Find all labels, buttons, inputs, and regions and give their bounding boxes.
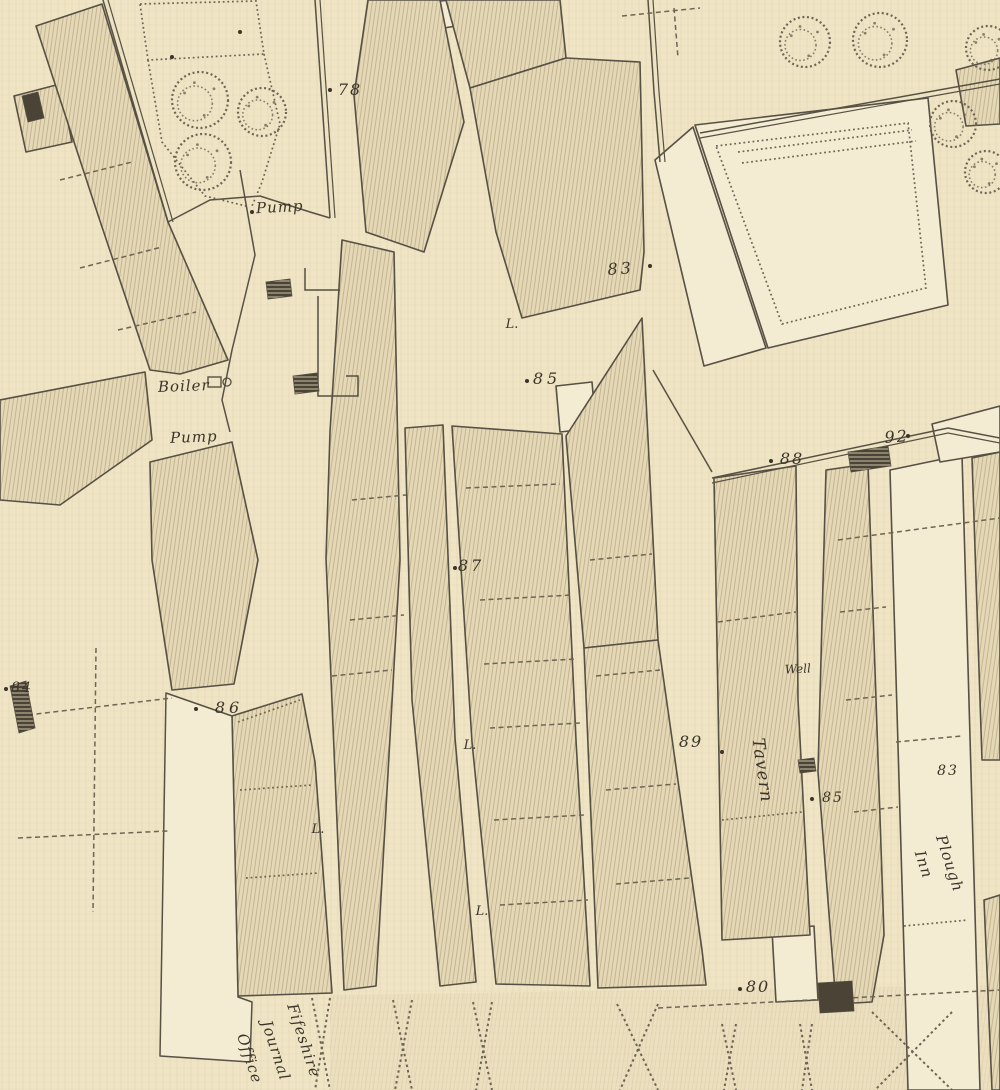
survey-dot [810, 797, 814, 801]
map-label-well: Well [784, 661, 811, 676]
map-label-pump-top: Pump [255, 197, 304, 218]
map-label-boiler: Boiler [157, 376, 210, 396]
survey-dot [453, 566, 457, 570]
survey-dot [170, 55, 174, 59]
structure-dark-s6 [818, 981, 854, 1013]
map-label-lamp-3: L. [463, 738, 477, 753]
survey-dot [648, 264, 652, 268]
map-label-lamp-1: L. [505, 317, 519, 332]
survey-dot [738, 987, 742, 991]
structure-dark-s7 [798, 758, 816, 773]
map-label-lamp-4: L. [475, 904, 489, 919]
map-canvas[interactable]: Pump78BoilerPump83L.859288878684L.L.L.89… [0, 0, 1000, 1090]
structure-dark-s3 [266, 279, 292, 299]
historic-map-view: Pump78BoilerPump83L.859288878684L.L.L.89… [0, 0, 1000, 1090]
map-label-num-88: 88 [780, 449, 804, 468]
survey-dot [769, 459, 773, 463]
survey-dot [525, 379, 529, 383]
ground-tint [330, 985, 1000, 1090]
survey-dot [4, 687, 8, 691]
structure-dark-s4 [293, 373, 319, 394]
map-label-lamp-2: L. [311, 822, 325, 837]
map-label-num-85-a: 85 [533, 369, 561, 388]
survey-dot [250, 210, 254, 214]
map-label-num-85-b: 85 [822, 790, 844, 806]
map-label-num-89: 89 [679, 732, 703, 751]
survey-dot [194, 707, 198, 711]
survey-dot [238, 30, 242, 34]
map-label-num-83-a: 83 [607, 258, 635, 279]
map-label-num-86: 86 [215, 698, 243, 717]
survey-dot [720, 750, 724, 754]
map-label-num-84: 84 [11, 680, 33, 696]
map-label-num-78: 78 [338, 80, 362, 99]
building-hatched-h13 [714, 466, 810, 940]
map-label-num-92: 92 [884, 426, 910, 447]
map-label-num-83-b: 83 [937, 763, 959, 779]
survey-dot [328, 88, 332, 92]
map-label-num-87: 87 [458, 556, 484, 575]
map-label-pump-mid: Pump [169, 427, 218, 447]
map-label-num-80: 80 [746, 977, 770, 996]
